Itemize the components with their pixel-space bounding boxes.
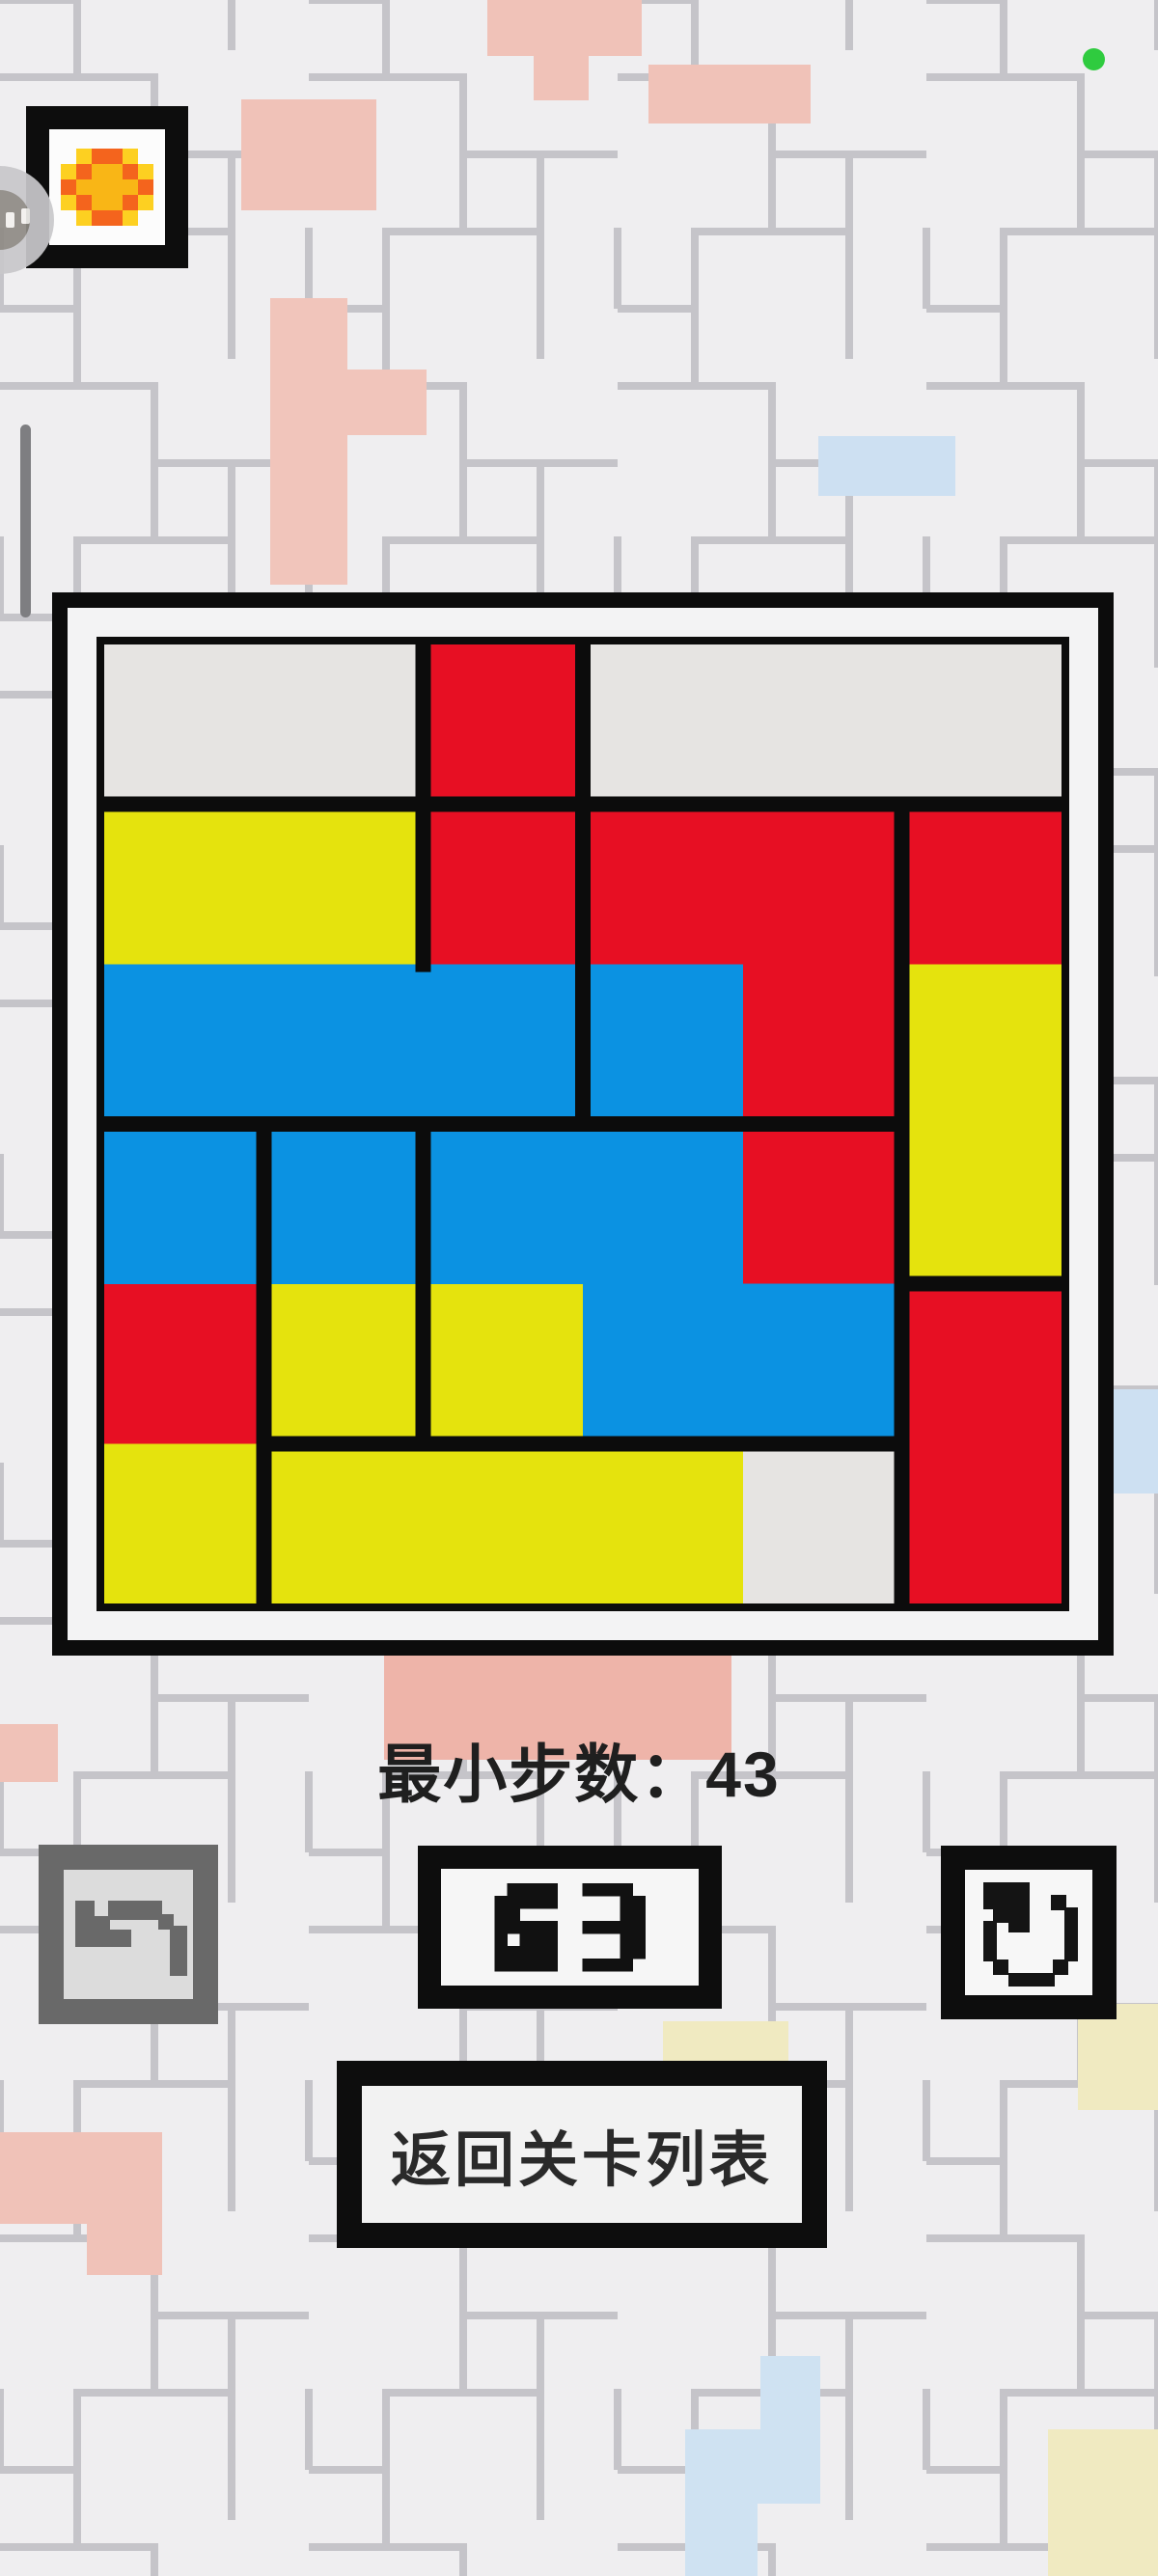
pixel-sun-icon xyxy=(61,149,153,226)
puzzle-piece-red-5[interactable] xyxy=(742,1124,902,1284)
restart-button[interactable] xyxy=(941,1846,1117,2019)
puzzle-piece-yellow-11[interactable] xyxy=(424,1284,584,1444)
puzzle-piece-yellow-8[interactable] xyxy=(104,805,424,965)
puzzle-piece-red-2[interactable] xyxy=(424,805,584,965)
puzzle-piece-blue-14[interactable] xyxy=(104,964,584,1124)
min-steps-value: 43 xyxy=(705,1739,780,1810)
recording-indicator-green-dot-icon xyxy=(1083,48,1105,70)
pixel-undo-arrow-icon xyxy=(64,1870,193,1999)
back-to-level-list-button[interactable]: 返回关卡列表 xyxy=(337,2061,827,2248)
puzzle-piece-red-6[interactable] xyxy=(104,1284,264,1444)
min-steps-label: 最小步数： xyxy=(377,1739,705,1810)
puzzle-piece-blue-15[interactable] xyxy=(583,964,743,1124)
puzzle-piece-yellow-12[interactable] xyxy=(104,1443,264,1603)
board-play-area[interactable] xyxy=(104,644,1061,1603)
puzzle-piece-red-4[interactable] xyxy=(902,805,1061,965)
edge-slider-handle[interactable] xyxy=(20,425,31,617)
board-inset-ring xyxy=(68,608,1098,1640)
move-counter-digits xyxy=(441,1869,699,1986)
puzzle-piece-yellow-13[interactable] xyxy=(263,1443,743,1603)
puzzle-piece-red-7[interactable] xyxy=(902,1284,1061,1603)
undo-button[interactable] xyxy=(39,1845,218,2024)
puzzle-piece-yellow-9[interactable] xyxy=(902,964,1061,1284)
sun-button-face xyxy=(49,129,165,245)
puzzle-piece-blue-16[interactable] xyxy=(104,1124,264,1284)
min-steps-caption: 最小步数：43 xyxy=(0,1723,1158,1816)
back-button-label: 返回关卡列表 xyxy=(391,2111,773,2198)
pixel-restart-arrow-icon xyxy=(965,1870,1094,1999)
puzzle-board-frame xyxy=(52,592,1114,1656)
puzzle-piece-red-1[interactable] xyxy=(424,644,584,805)
board-inner-border xyxy=(96,637,1069,1611)
game-screen: 最小步数：43 xyxy=(0,0,1158,2576)
sun-button[interactable] xyxy=(26,106,188,268)
puzzle-piece-yellow-10[interactable] xyxy=(263,1284,424,1444)
puzzle-piece-blue-17[interactable] xyxy=(263,1124,424,1284)
move-counter xyxy=(418,1846,722,2009)
puzzle-grid[interactable] xyxy=(104,644,1061,1603)
